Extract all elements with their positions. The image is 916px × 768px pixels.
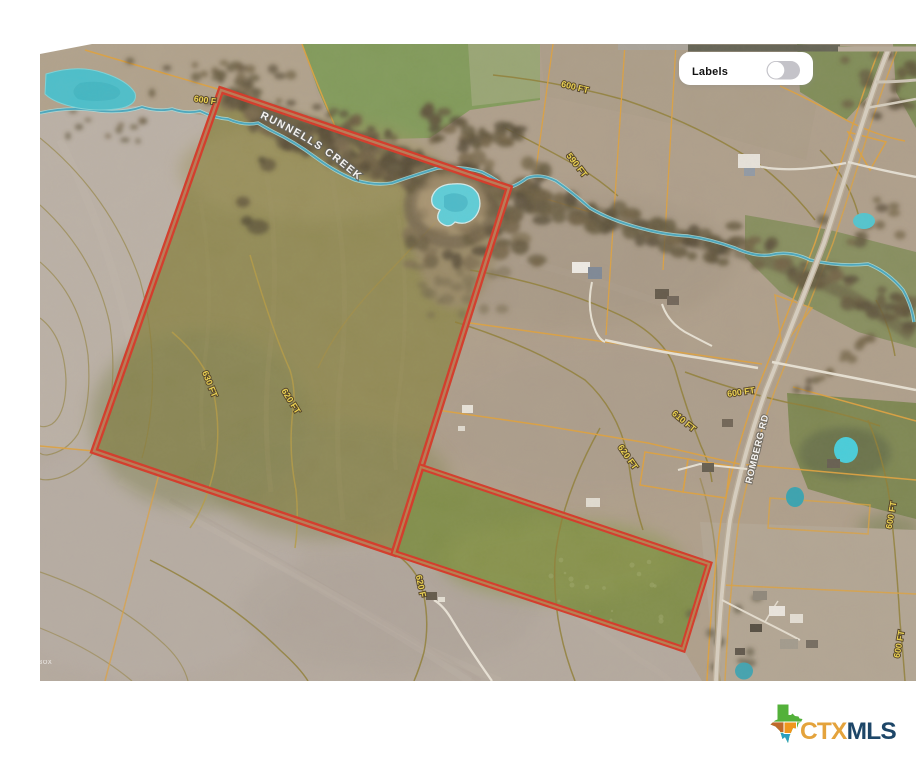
svg-text:CTXMLS: CTXMLS (800, 718, 896, 745)
svg-text:Labels: Labels (692, 66, 728, 78)
